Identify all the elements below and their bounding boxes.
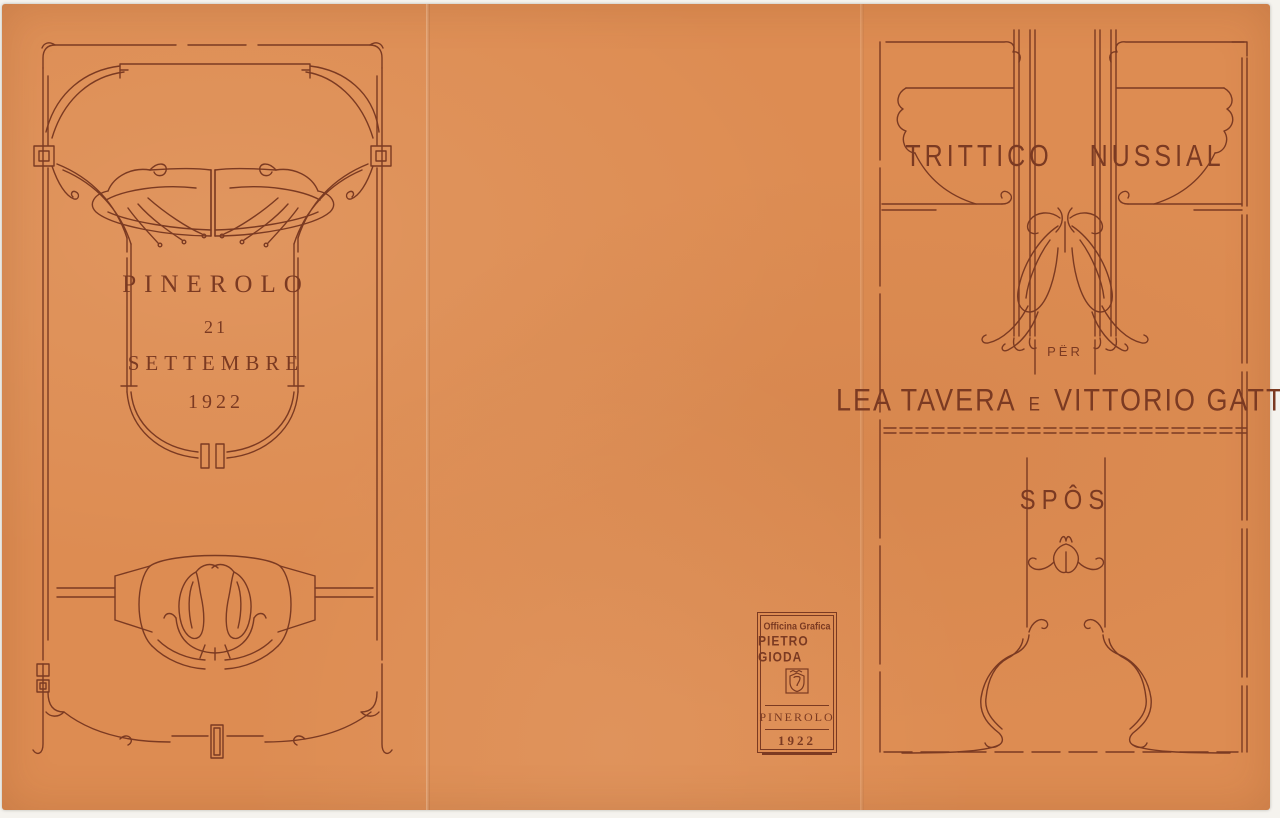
preposition: PËR — [1047, 344, 1083, 359]
bride-name: LEA TAVERA — [836, 383, 1017, 419]
left-panel-month: SETTEMBRE — [128, 351, 305, 376]
printer-year: 1922 — [778, 733, 816, 749]
printer-mark-rule-2 — [765, 729, 829, 730]
couple-names: LEA TAVERA E VITTORIO GATTI — [836, 383, 1280, 419]
printer-studio-label: Officina Grafica — [763, 621, 830, 632]
names-conjunction: E — [1029, 393, 1042, 416]
left-panel-city: PINEROLO — [122, 271, 310, 299]
fold-crease-left — [426, 4, 430, 810]
printer-shield-monogram-icon — [785, 668, 809, 699]
booklet-title: TRITTICO NUSSIAL — [905, 139, 1224, 174]
subtitle-spos: SPÔS — [1020, 485, 1111, 517]
left-panel-day: 21 — [204, 317, 228, 338]
printer-mark-rule — [765, 705, 829, 706]
left-panel-year: 1922 — [188, 391, 244, 414]
printer-city: PINEROLO — [759, 710, 834, 725]
printer-mark-box: Officina Grafica PIETRO GIODA PINEROLO 1… — [757, 612, 837, 753]
scanned-wedding-booklet: { "colors": { "paper": "#DD8C52", "ink":… — [0, 0, 1280, 818]
printer-name: PIETRO GIODA — [758, 633, 836, 665]
groom-name: VITTORIO GATTI — [1054, 383, 1280, 419]
printer-mark-double-rule — [762, 753, 832, 755]
